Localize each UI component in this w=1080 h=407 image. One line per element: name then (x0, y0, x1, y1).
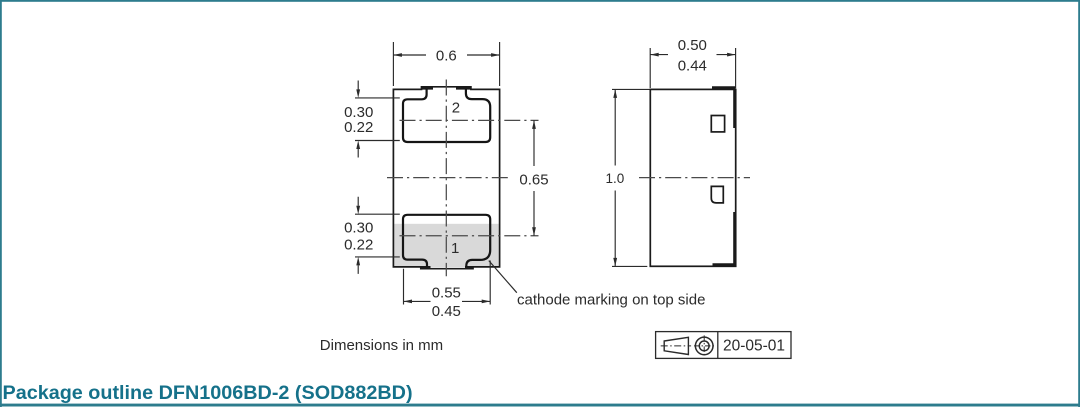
svg-text:2: 2 (452, 100, 460, 117)
svg-text:0.44: 0.44 (678, 57, 707, 74)
svg-text:1.0: 1.0 (606, 171, 625, 186)
svg-text:0.6: 0.6 (436, 47, 457, 64)
svg-text:0.50: 0.50 (678, 37, 707, 54)
svg-text:20-05-01: 20-05-01 (723, 338, 785, 355)
svg-text:0.45: 0.45 (432, 303, 461, 320)
svg-text:0.55: 0.55 (432, 285, 461, 302)
svg-text:0.22: 0.22 (344, 236, 373, 253)
svg-text:1: 1 (451, 240, 459, 257)
svg-text:0.30: 0.30 (344, 220, 373, 237)
svg-text:0.65: 0.65 (519, 172, 548, 189)
svg-text:Dimensions in mm: Dimensions in mm (320, 337, 443, 354)
svg-text:cathode marking on top side: cathode marking on top side (517, 291, 705, 308)
svg-text:0.22: 0.22 (344, 119, 373, 136)
svg-text:Package outline DFN1006BD-2 (S: Package outline DFN1006BD-2 (SOD882BD) (3, 382, 413, 404)
